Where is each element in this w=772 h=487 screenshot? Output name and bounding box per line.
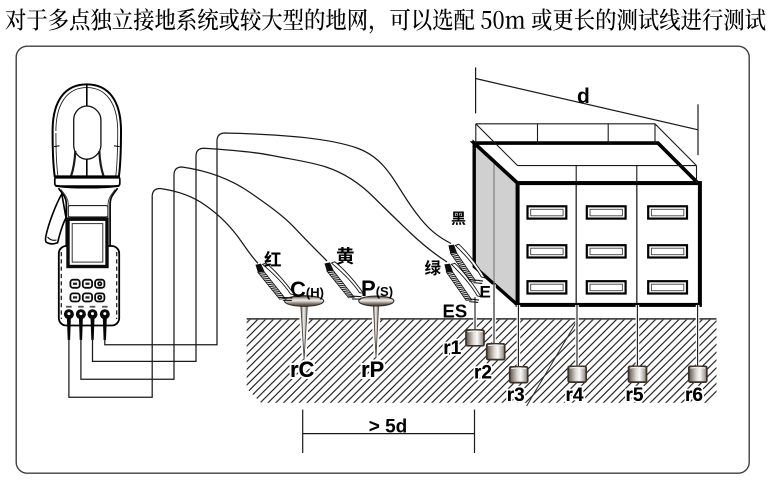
svg-text:ES: ES [443, 301, 468, 322]
svg-text:> 5d: > 5d [369, 417, 408, 438]
svg-text:rP: rP [361, 357, 384, 382]
svg-text:r1: r1 [443, 338, 461, 359]
svg-text:d: d [577, 85, 590, 108]
svg-text:r5: r5 [626, 385, 644, 406]
svg-text:r3: r3 [507, 385, 525, 406]
svg-text:E: E [480, 283, 491, 302]
svg-text:r2: r2 [474, 363, 492, 384]
svg-text:r6: r6 [685, 385, 703, 406]
svg-text:rC: rC [290, 357, 315, 382]
svg-text:r4: r4 [566, 385, 584, 406]
